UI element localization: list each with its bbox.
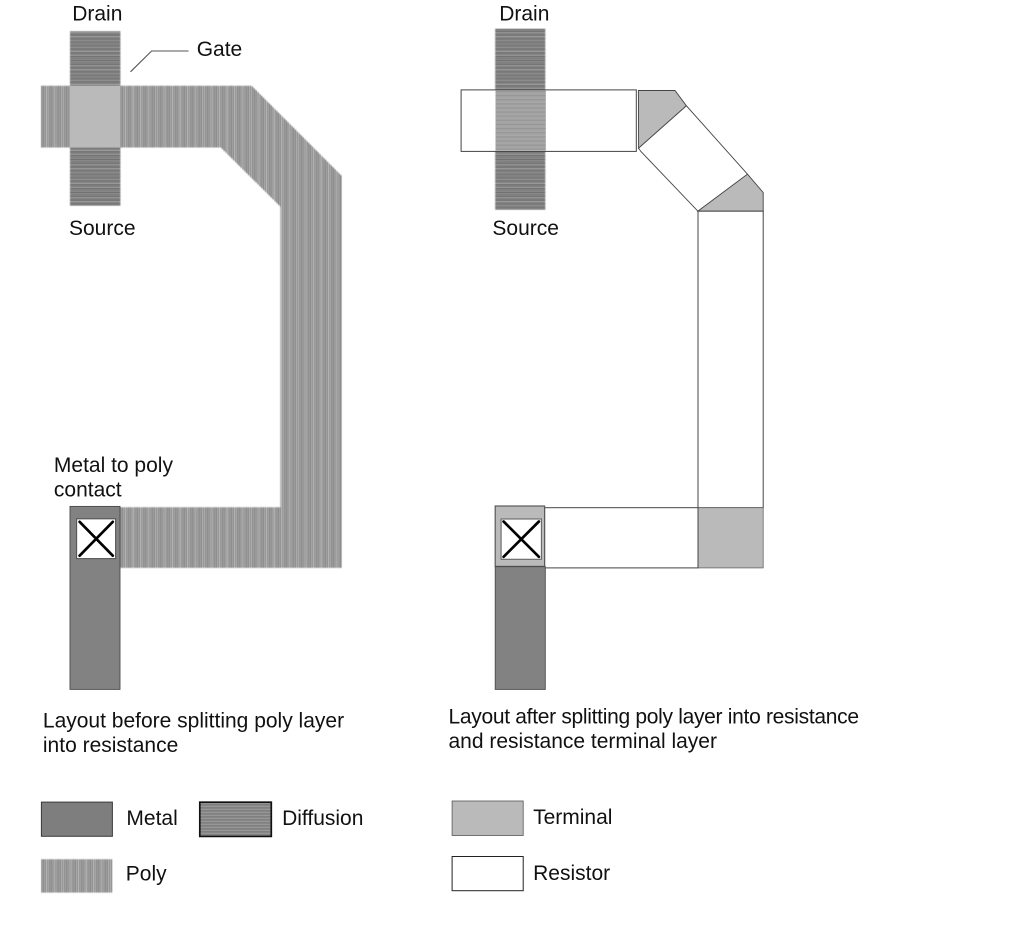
svg-text:Gate: Gate bbox=[197, 38, 243, 61]
svg-text:Layout after splitting poly la: Layout after splitting poly layer into r… bbox=[449, 705, 859, 728]
svg-text:Layout before splitting poly l: Layout before splitting poly layer bbox=[43, 710, 344, 733]
svg-text:and resistance terminal layer: and resistance terminal layer bbox=[449, 730, 717, 753]
svg-text:Poly: Poly bbox=[126, 862, 167, 885]
svg-text:Drain: Drain bbox=[72, 3, 122, 26]
svg-text:into resistance: into resistance bbox=[43, 734, 178, 757]
svg-text:Diffusion: Diffusion bbox=[282, 807, 363, 830]
svg-text:Drain: Drain bbox=[499, 3, 549, 26]
svg-text:contact: contact bbox=[54, 478, 122, 501]
svg-text:Metal: Metal bbox=[126, 807, 177, 830]
svg-text:Resistor: Resistor bbox=[533, 862, 610, 885]
svg-text:Source: Source bbox=[69, 217, 136, 240]
svg-text:Terminal: Terminal bbox=[533, 806, 612, 829]
svg-text:Metal to poly: Metal to poly bbox=[54, 454, 174, 477]
svg-text:Source: Source bbox=[492, 217, 559, 240]
